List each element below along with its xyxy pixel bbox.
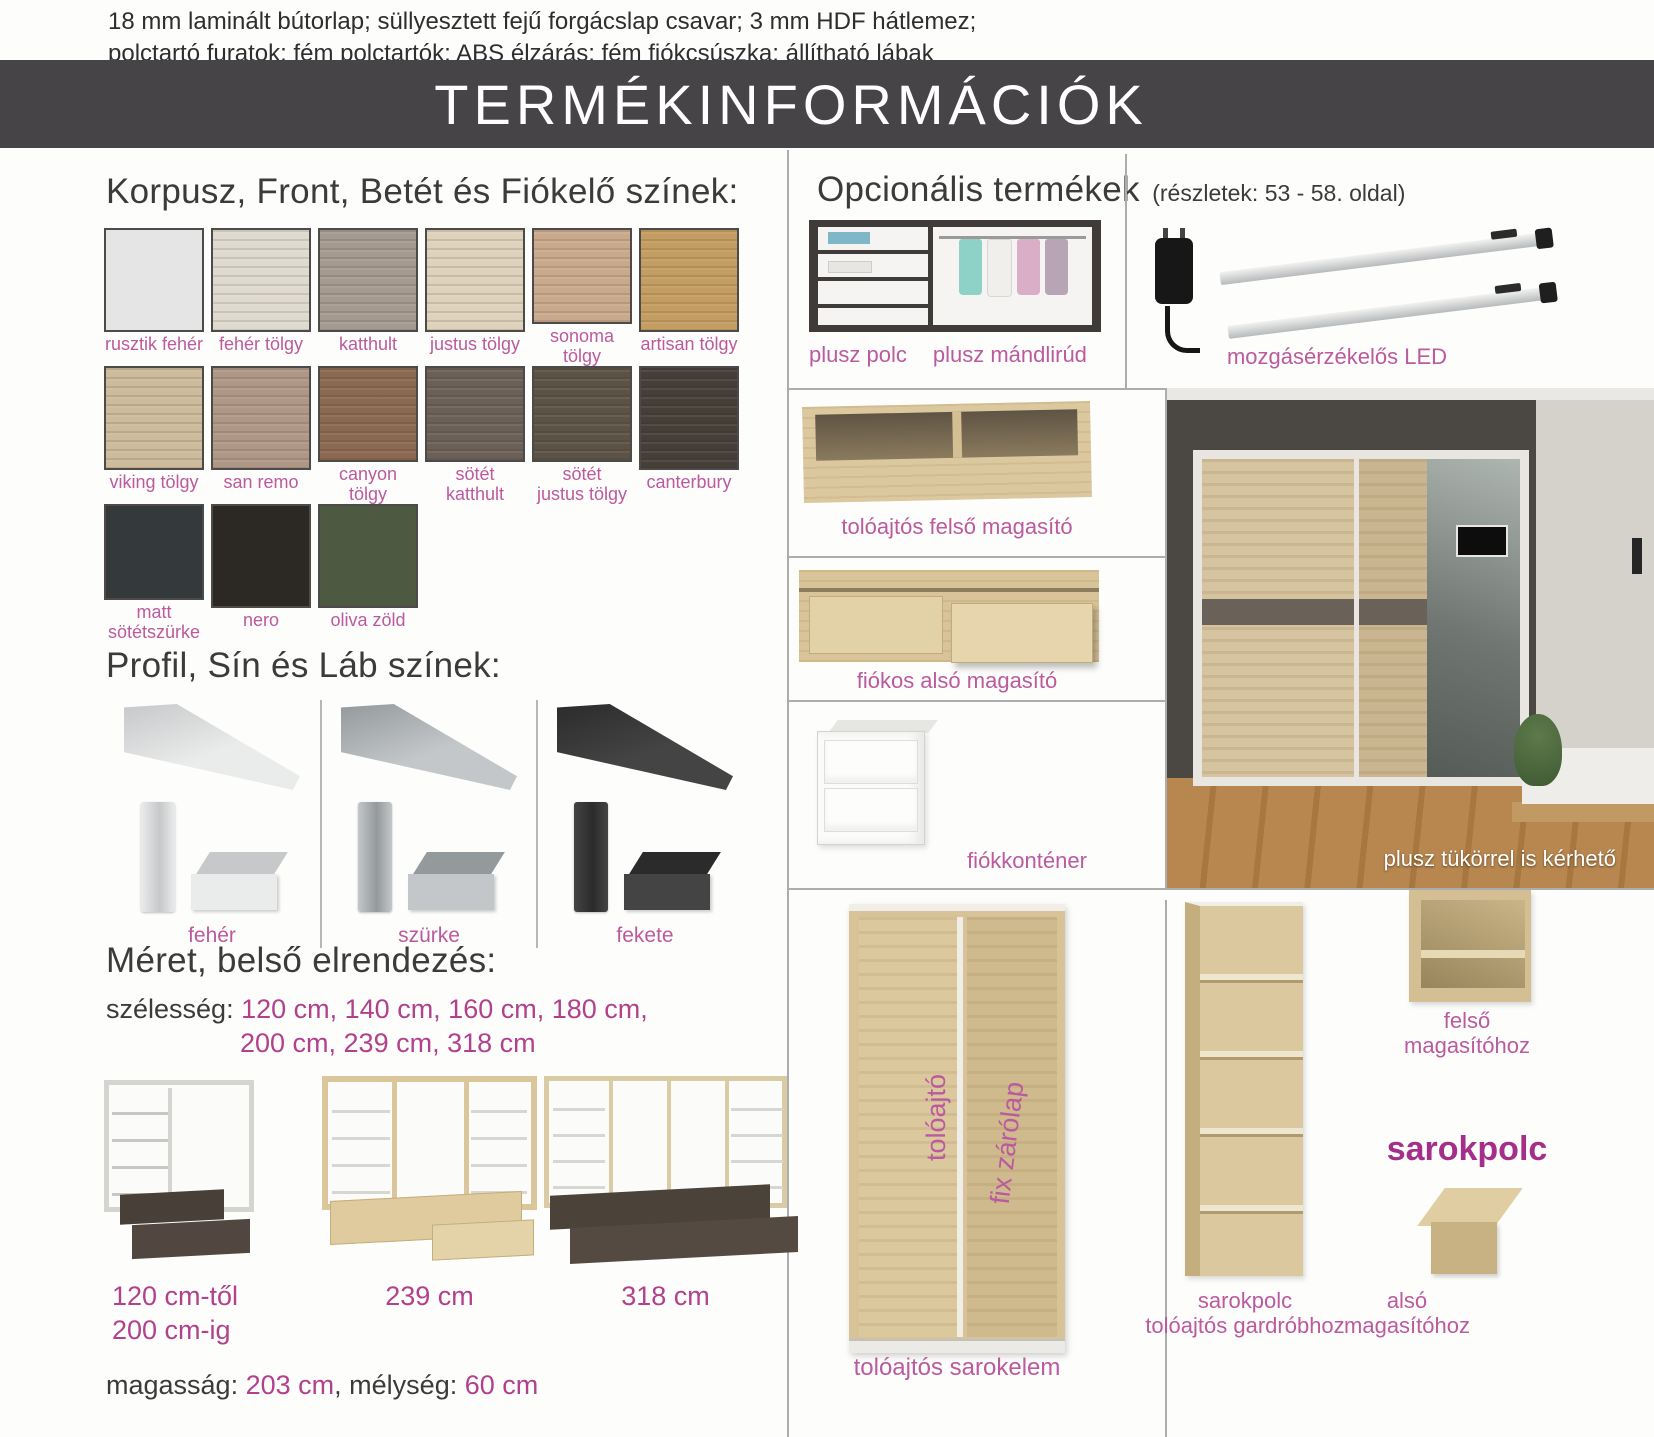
ceiling (1165, 388, 1654, 400)
wardrobe-divider (464, 1082, 469, 1204)
width-line: szélesség: 120 cm, 140 cm, 160 cm, 180 c… (106, 994, 648, 1025)
hanging-garment (1045, 239, 1068, 295)
wardrobe-divider (725, 1081, 729, 1203)
caption-120-200: 120 cm-től 200 cm-ig (104, 1280, 282, 1348)
extension-seam (799, 588, 1099, 592)
swatch-color (318, 228, 418, 332)
width-values-line2: 200 cm, 239 cm, 318 cm (240, 1028, 536, 1059)
swatch-color (104, 366, 204, 470)
container-drawer (824, 740, 918, 784)
swatch-label: canterbury (646, 473, 731, 492)
bed-base (1512, 802, 1654, 822)
swatch-label: san remo (223, 473, 298, 492)
small-corner-shelf-image (1415, 1188, 1519, 1280)
swatch-label: sötét katthult (425, 465, 525, 504)
wardrobe-divider (392, 1082, 397, 1204)
size-variant-images (104, 1076, 787, 1276)
width-label: szélesség: (106, 994, 234, 1024)
profile-wedge-shape (124, 704, 300, 790)
swatch-label: rusztik fehér (105, 335, 203, 354)
caption-line: 120 cm-től (112, 1280, 282, 1314)
height-depth-line: magasság: 203 cm, mélység: 60 cm (106, 1370, 538, 1401)
profile-shapes (358, 800, 500, 912)
caption-line: 200 cm-ig (112, 1314, 282, 1348)
swatch-label: katthult (339, 335, 397, 354)
swatch-color (532, 366, 632, 462)
led-connector (1491, 229, 1518, 240)
shelf-interior (1421, 900, 1525, 988)
drawer-container-image (817, 720, 947, 846)
led-sensor (1535, 227, 1554, 249)
swatch-label: sonoma tölgy (532, 327, 632, 366)
swatch-color (318, 366, 418, 462)
swatch-label: fehér tölgy (219, 335, 303, 354)
wardrobe-shelves (553, 1085, 605, 1199)
swatch-canterbury: canterbury (639, 366, 739, 504)
swatch-label: viking tölgy (109, 473, 198, 492)
color-swatch-grid: rusztik fehérfehér tölgykatthultjustus t… (104, 228, 752, 642)
swatch-label: nero (243, 611, 279, 630)
foot-block-top (196, 852, 288, 874)
wardrobe-shelves (731, 1085, 783, 1199)
foot-block-shape (408, 852, 500, 912)
sliding-wardrobe-image (1193, 450, 1529, 786)
profile-color-group-fekete: fekete (536, 700, 752, 948)
page-title: TERMÉKINFORMÁCIÓK (434, 72, 1147, 137)
profile-wedge-shape (341, 704, 517, 790)
swatch-nero: nero (211, 504, 311, 642)
plusz-mandlirud-label: plusz mándlirúd (933, 342, 1087, 367)
hanging-garment (959, 239, 982, 295)
mirror-door (1427, 459, 1520, 777)
swatch-sötét-justus-tölgy: sötét justus tölgy (532, 366, 632, 504)
foot-block-top (629, 852, 721, 874)
shelf-top-face (1417, 1188, 1523, 1226)
width-values-line1: 120 cm, 140 cm, 160 cm, 180 cm, (241, 994, 648, 1024)
swatch-sonoma-tölgy: sonoma tölgy (532, 228, 632, 366)
wardrobe-base (849, 1339, 1065, 1353)
closet-shelf-column (818, 227, 933, 325)
swatch-rusztik-fehér: rusztik fehér (104, 228, 204, 366)
wardrobe-image-239 (322, 1076, 537, 1276)
top-extension-image (802, 401, 1092, 503)
swatch-color (425, 228, 525, 332)
wood-door (1202, 459, 1354, 777)
swatch-color (639, 228, 739, 332)
profile-color-group-szürke: szürke (320, 700, 536, 948)
foot-block-top (413, 852, 505, 874)
depth-label: mélység: (349, 1370, 457, 1400)
optional-products-column: Opcionális termékek (részletek: 53 - 58.… (787, 148, 1654, 1437)
foot-block-front (191, 874, 277, 910)
swatch-label: artisan tölgy (640, 335, 737, 354)
swatch-fehér-tölgy: fehér tölgy (211, 228, 311, 366)
wardrobe-shelves (332, 1086, 390, 1200)
swatch-color (425, 366, 525, 462)
height-label: magasság: (106, 1370, 238, 1400)
profile-rail-shape (358, 802, 392, 912)
size-heading: Méret, belső elrendezés: (106, 941, 496, 981)
swatch-san-remo: san remo (211, 366, 311, 504)
swatch-label: canyon tölgy (318, 465, 418, 504)
plant (1514, 714, 1562, 786)
swatch-label: justus tölgy (430, 335, 520, 354)
depth-value: 60 cm (465, 1370, 539, 1400)
wardrobe-shelves (471, 1086, 527, 1200)
profile-shapes (574, 800, 716, 912)
swatch-color (104, 228, 204, 332)
cell-divider (1125, 154, 1127, 388)
drawer-extension-label: fiókos alsó magasító (787, 668, 1127, 693)
tv-reflection (1456, 525, 1508, 557)
swatch-color (318, 504, 418, 608)
closet-interior-photo (809, 220, 1101, 332)
wardrobe-divider (667, 1081, 671, 1203)
led-sensor (1539, 282, 1558, 304)
hanging-garment (987, 239, 1012, 297)
led-bar-image (1227, 286, 1552, 339)
extension-drawer (951, 603, 1093, 663)
colors-heading: Korpusz, Front, Betét és Fiókelő színek: (106, 172, 739, 212)
sliding-door-label: tolóajtó (921, 941, 952, 1161)
separator: , (334, 1370, 342, 1400)
wardrobe-drawer (432, 1219, 534, 1260)
plusz-polc-label: plusz polc (809, 342, 907, 367)
profile-wedge-shape (557, 704, 733, 790)
led-bar-image (1219, 232, 1548, 285)
bottom-extension-shelf-label: alsó magasítóhoz (1322, 1288, 1492, 1339)
optional-heading: Opcionális termékek (részletek: 53 - 58.… (817, 170, 1405, 210)
extension-opening (815, 409, 1078, 460)
swatch-canyon-tölgy: canyon tölgy (318, 366, 418, 504)
wardrobe-image-318 (544, 1076, 787, 1276)
top-extension-shelf-label: felső magasítóhoz (1347, 1008, 1587, 1059)
swatch-label: sötét justus tölgy (537, 465, 627, 504)
swatch-color (211, 504, 311, 608)
shelf-front-face (1431, 1222, 1497, 1274)
shelf-board (1421, 950, 1525, 958)
caption-239: 239 cm (322, 1280, 537, 1314)
bedroom-photo: plusz tükörrel is kérhető (1165, 388, 1654, 888)
extension-divider (952, 412, 962, 458)
wardrobe-frame (322, 1076, 537, 1210)
container-drawer (824, 788, 918, 832)
led-connector (1495, 283, 1522, 294)
profile-rail-shape (574, 802, 608, 912)
row-divider (787, 556, 1165, 558)
materials-note-line1: 18 mm laminált bútorlap; süllyesztett fe… (108, 6, 976, 38)
foot-block-shape (191, 852, 283, 912)
optional-heading-text: Opcionális termékek (817, 170, 1140, 209)
caption-318: 318 cm (544, 1280, 787, 1314)
folded-clothes (828, 261, 872, 273)
swatch-color (532, 228, 632, 324)
mirror-option-label: plusz tükörrel is kérhető (1384, 846, 1616, 872)
hanging-garment (1017, 239, 1040, 295)
tall-corner-shelf-image (1185, 902, 1303, 1276)
closet-labels: plusz polc plusz mándlirúd (809, 342, 1109, 367)
profile-heading: Profil, Sín és Láb színek: (106, 646, 501, 686)
swatch-color (639, 366, 739, 470)
swatch-color (104, 504, 204, 600)
row-divider (787, 700, 1165, 702)
drawer-container-label: fiókkonténer (897, 848, 1157, 873)
profile-color-label: fekete (616, 924, 673, 948)
swatch-label: matt sötétszürke (108, 603, 200, 642)
profile-color-row: fehérszürkefekete (104, 700, 756, 948)
swatch-label: oliva zöld (330, 611, 405, 630)
closet-hanging-area (933, 227, 1092, 325)
foot-block-front (408, 874, 494, 910)
swatch-justus-tölgy: justus tölgy (425, 228, 525, 366)
wall-lamp (1632, 538, 1642, 574)
profile-shapes (141, 800, 283, 912)
swatch-viking-tölgy: viking tölgy (104, 366, 204, 504)
corner-wardrobe-image: tolóajtó fix zárólap (849, 904, 1065, 1353)
drawer-extension-image (799, 570, 1099, 662)
foot-block-front (624, 874, 710, 910)
wardrobe-drawer (132, 1219, 250, 1259)
cell-divider (1165, 388, 1167, 888)
wood-door (1359, 459, 1520, 777)
cell-divider (1165, 900, 1167, 1437)
corner-wardrobe-label: tolóajtós sarokelem (787, 1354, 1127, 1382)
extension-drawer (809, 596, 943, 654)
swatch-sötét-katthult: sötét katthult (425, 366, 525, 504)
foot-block-shape (624, 852, 716, 912)
wardrobe-drawer (120, 1189, 224, 1224)
swatch-artisan-tölgy: artisan tölgy (639, 228, 739, 366)
folded-clothes (828, 232, 870, 244)
power-adapter-image (1155, 238, 1193, 304)
wardrobe-image-120-200 (104, 1080, 254, 1276)
swatch-color (211, 366, 311, 470)
profile-color-group-fehér: fehér (104, 700, 320, 948)
container-body (817, 731, 925, 845)
left-column: Korpusz, Front, Betét és Fiókelő színek:… (0, 148, 787, 1437)
profile-rail-shape (141, 802, 175, 912)
top-corner-shelf-image (1409, 890, 1531, 1002)
swatch-katthult: katthult (318, 228, 418, 366)
title-bar: TERMÉKINFORMÁCIÓK (0, 60, 1654, 148)
top-extension-label: tolóajtós felső magasító (787, 514, 1127, 539)
wardrobe-shelves (112, 1088, 172, 1204)
wardrobe-divider (609, 1081, 613, 1203)
corner-shelf-title: sarokpolc (1332, 1130, 1602, 1169)
optional-heading-note: (részletek: 53 - 58. oldal) (1152, 180, 1405, 206)
closet-interior (818, 227, 1092, 325)
door-stripe (1202, 599, 1354, 625)
height-value: 203 cm (246, 1370, 335, 1400)
swatch-oliva-zöld: oliva zöld (318, 504, 418, 642)
swatch-color (211, 228, 311, 332)
led-label: mozgásérzékelős LED (1187, 344, 1487, 369)
catalog-page: 18 mm laminált bútorlap; süllyesztett fe… (0, 0, 1654, 1437)
swatch-matt-sötétszürke: matt sötétszürke (104, 504, 204, 642)
